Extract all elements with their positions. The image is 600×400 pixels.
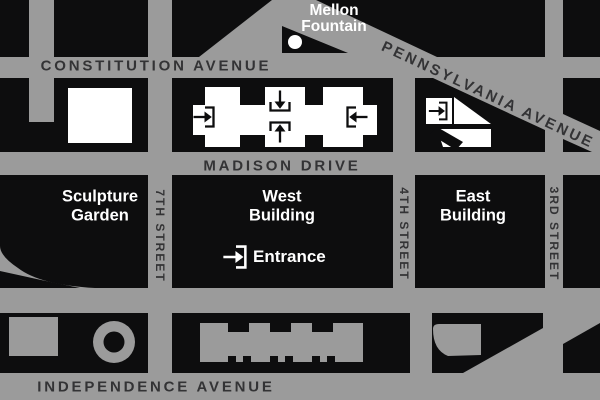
street-label-independence-avenue: INDEPENDENCE AVENUE: [37, 379, 274, 396]
block-top-left: [54, 0, 148, 57]
mellon-fountain-dot: [288, 35, 302, 49]
place-label-mellon-fountain: Mellon Fountain: [301, 3, 366, 35]
block-bottom-far-right: [563, 323, 600, 373]
building-square-south: [9, 317, 58, 356]
block-right-mid: [563, 175, 600, 288]
street-label-3rd-street: 3RD STREET: [547, 187, 561, 282]
place-label-west-building: West Building: [249, 187, 315, 224]
legend-entrance-label: Entrance: [253, 247, 326, 267]
street-label-constitution-avenue: CONSTITUTION AVENUE: [41, 58, 272, 75]
building-white-square: [68, 88, 132, 143]
building-ring-hole: [104, 332, 125, 353]
street-label-4th-street: 4TH STREET: [397, 187, 411, 280]
block-top-far-right: [563, 0, 600, 57]
place-label-sculpture-garden: Sculpture Garden: [62, 187, 138, 224]
gallery-area-map: CONSTITUTION AVENUE PENNSYLVANIA AVENUE …: [0, 0, 600, 400]
block-top-center-cut-by-ramp: [172, 0, 272, 57]
place-label-east-building: East Building: [440, 187, 506, 224]
block-top-far-left: [0, 0, 29, 57]
street-label-madison-drive: MADISON DRIVE: [203, 158, 360, 175]
street-label-7th-street: 7TH STREET: [153, 189, 167, 282]
